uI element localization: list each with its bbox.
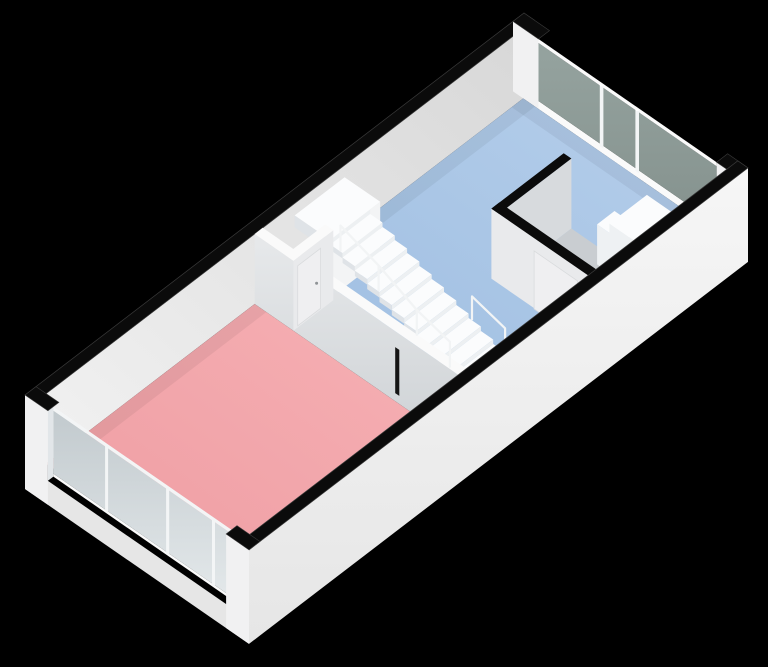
mullion-cap bbox=[635, 109, 639, 111]
door-handle-icon bbox=[315, 282, 318, 285]
glass-mullion[interactable] bbox=[166, 487, 169, 555]
mullion-cap bbox=[600, 84, 604, 86]
sw-pier-face[interactable] bbox=[25, 395, 48, 505]
glass-mullion[interactable] bbox=[105, 445, 108, 513]
railing-post[interactable] bbox=[339, 226, 341, 252]
window-mullion[interactable] bbox=[635, 109, 639, 174]
glass-mullion[interactable] bbox=[212, 519, 215, 587]
railing-post[interactable] bbox=[416, 310, 418, 336]
window-mullion[interactable] bbox=[600, 84, 604, 148]
sw-pier-face[interactable] bbox=[226, 534, 249, 644]
sw-pier-return[interactable] bbox=[48, 407, 54, 481]
railing-post[interactable] bbox=[449, 342, 451, 368]
floorplan-viewport bbox=[0, 0, 768, 667]
partition-opening-edge[interactable] bbox=[395, 347, 399, 396]
railing-post[interactable] bbox=[378, 266, 380, 292]
railing-post[interactable] bbox=[471, 296, 473, 320]
floorplan-3d-view bbox=[0, 0, 768, 667]
